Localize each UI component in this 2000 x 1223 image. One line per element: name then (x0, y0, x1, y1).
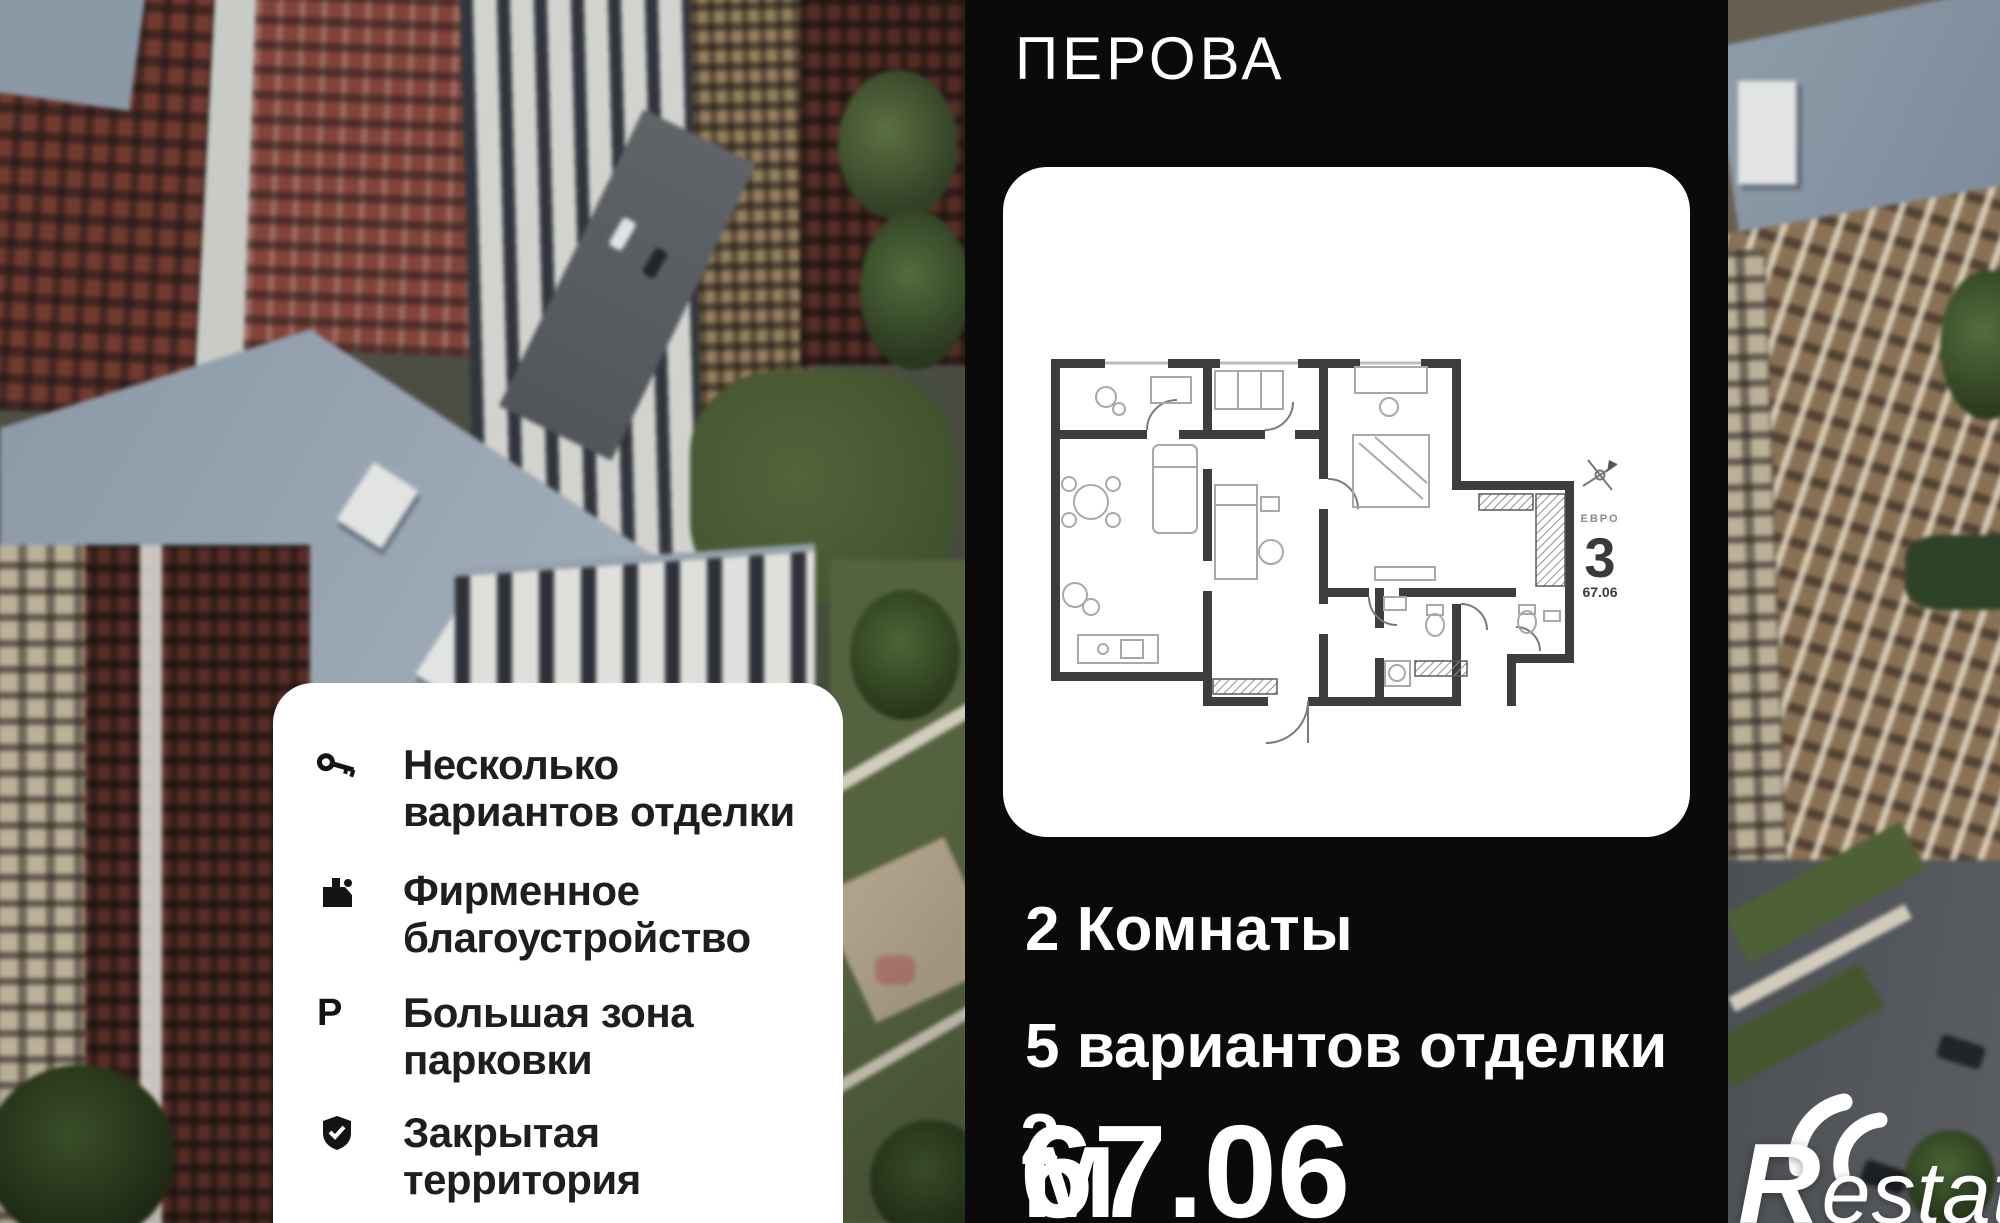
floorplan-card: ЕВРО 3 67.06 (1003, 167, 1690, 837)
plan-category-label: ЕВРО (1580, 513, 1619, 525)
watermark-brand-text: Restate (1738, 1118, 2000, 1223)
building-icon (317, 871, 357, 911)
ad-banner: ЛЮСТЕН ПЕРОВА (0, 0, 2000, 1223)
hedge (1905, 535, 2000, 610)
project-title-line1-cropped: ЛЮСТЕН (1012, 0, 1572, 15)
feature-line: благоустройство (403, 914, 751, 961)
feature-line: Несколько (403, 741, 619, 788)
feature-line: Большая зона (403, 989, 693, 1036)
finishing-options-text: 5 вариантов отделки (1025, 1011, 1667, 1082)
feature-line: территория (403, 1156, 641, 1203)
parking-icon: Р (317, 993, 357, 1033)
compass-icon (1583, 460, 1617, 490)
chimney (1737, 80, 1797, 185)
shield-check-icon (317, 1113, 357, 1153)
info-panel: ЛЮСТЕН ПЕРОВА (965, 0, 1728, 1223)
feature-line: вариантов отделки (403, 788, 795, 835)
project-title-line2: ПЕРОВА (1015, 24, 1286, 93)
feature-line: Закрытая (403, 1109, 600, 1156)
plan-rooms-number: 3 (1584, 526, 1615, 589)
feature-line: Фирменное (403, 867, 639, 914)
rooms-count-text: 2 Комнаты (1025, 894, 1353, 965)
area-superscript: 2 (1020, 1100, 1060, 1180)
features-card: Несколько вариантов отделки Фирменное бл… (273, 683, 843, 1223)
area-text: 67.06 м2 (1020, 1096, 1060, 1223)
key-icon (317, 745, 357, 785)
plan-area-number: 67.06 (1582, 584, 1617, 600)
feature-line: парковки (403, 1036, 592, 1083)
floorplan-drawing: ЕВРО 3 67.06 (1003, 167, 1690, 837)
restate-watermark: Restate (1738, 1096, 2000, 1223)
